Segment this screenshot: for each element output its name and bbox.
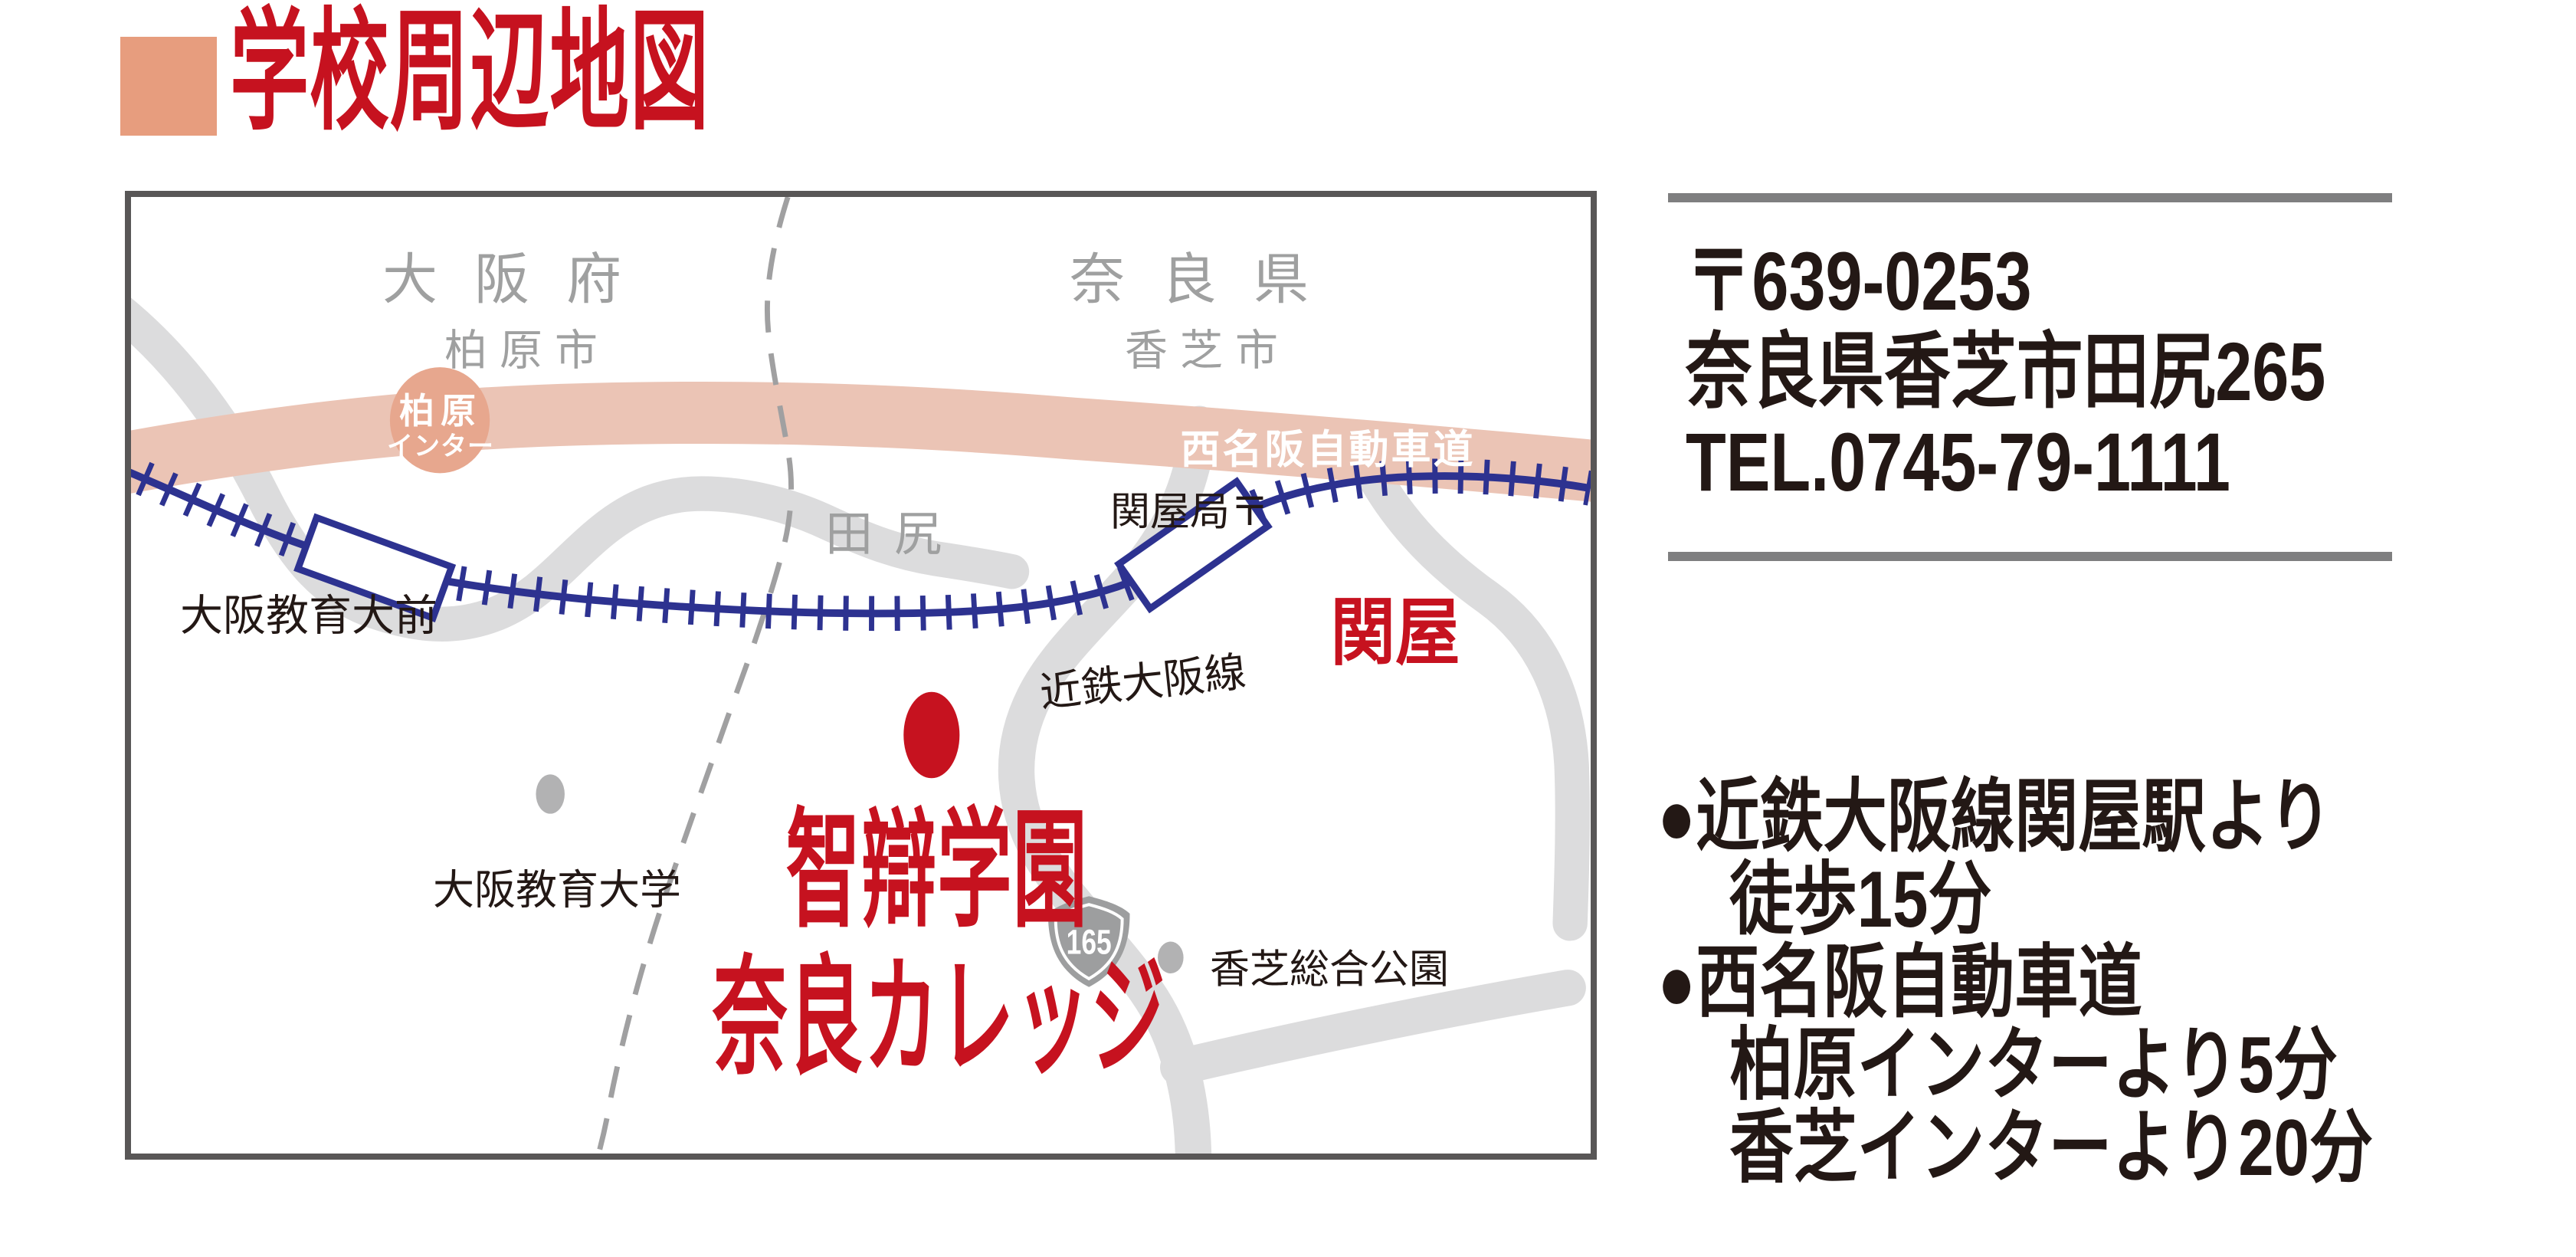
page-title: 学校周辺地図 [230, 5, 710, 143]
road-branch-northeast [1178, 988, 1568, 1068]
label-kashiwara-ic-line2: インター [387, 425, 494, 463]
label-city-kashiba: 香芝市 [1125, 317, 1290, 379]
area-map: 165 大阪府 柏原市 奈良県 香芝市 田尻 柏原 インター 西名阪自動車道 関… [125, 191, 1597, 1160]
university-dot [536, 774, 565, 813]
info-divider-bottom [1668, 552, 2392, 561]
school-marker-dot [903, 692, 959, 779]
label-post-office: 関屋局〒 [1110, 480, 1270, 537]
info-divider-top [1668, 193, 2392, 202]
address-block: 〒639-0253 奈良県香芝市田尻265 TEL.0745-79-1111 [1686, 236, 2325, 507]
access-block: ●近鉄大阪線関屋駅より 徒歩15分 ●西名阪自動車道 柏原インターより5分 香芝… [1657, 776, 2373, 1190]
label-city-kashiwara: 柏原市 [444, 317, 610, 379]
label-park: 香芝総合公園 [1210, 937, 1449, 995]
postal-code: 〒639-0253 [1686, 236, 2325, 327]
road-sekiya [1360, 448, 1573, 924]
label-university: 大阪教育大学 [433, 856, 681, 917]
label-school-line2: 奈良カレッジ [713, 914, 1166, 1100]
access-line-walk: 徒歩15分 [1657, 858, 2373, 941]
label-station-sekiya: 関屋 [1331, 573, 1460, 680]
street-address: 奈良県香芝市田尻265 [1686, 327, 2325, 417]
label-pref-osaka: 大阪府 [382, 235, 658, 315]
page: 学校周辺地図 [0, 0, 2576, 1257]
label-station-osakakyoikudai-mae: 大阪教育大前 [180, 582, 438, 644]
access-line-kashiba-ic: 香芝インターより20分 [1657, 1107, 2373, 1190]
access-line-kashiwara-ic: 柏原インターより5分 [1657, 1024, 2373, 1107]
label-expressway: 西名阪自動車道 [1180, 418, 1475, 475]
access-line-expressway: ●西名阪自動車道 [1657, 941, 2373, 1024]
phone-number: TEL.0745-79-1111 [1686, 417, 2325, 507]
label-pref-nara: 奈良県 [1070, 235, 1345, 315]
label-district-tajiri: 田尻 [825, 495, 963, 564]
access-line-rail: ●近鉄大阪線関屋駅より [1657, 776, 2373, 858]
title-accent-square [120, 37, 217, 136]
